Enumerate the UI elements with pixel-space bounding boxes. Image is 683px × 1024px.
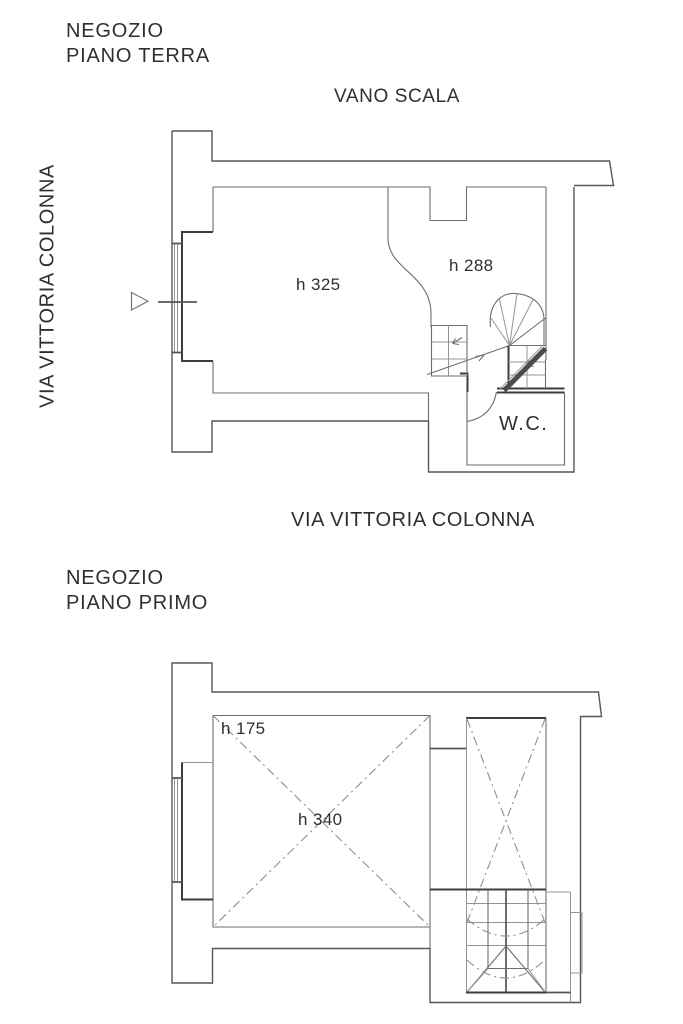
street-name-left: VIA VITTORIA COLONNA: [37, 164, 60, 408]
room-height-main-gf: h 325: [296, 275, 341, 295]
ff-bay-window-lines: [175, 779, 178, 883]
gf-stair-treads-left: [432, 326, 468, 377]
gf-stair-break-band-edge: [500, 347, 542, 390]
gf-stair-arrow-left: [453, 338, 463, 345]
gf-inner-wall-top: [213, 187, 546, 221]
ff-outer-walls: [172, 663, 602, 1003]
gf-winder-arc: [490, 293, 544, 345]
street-name-bottom: VIA VITTORIA COLONNA: [291, 509, 535, 532]
first-floor-title-line2: PIANO PRIMO: [66, 591, 208, 616]
entrance-direction-marker: [132, 293, 149, 311]
ground-floor-title-line1: NEGOZIO: [66, 19, 210, 44]
ff-right-inner-line: [546, 892, 571, 1002]
wc-label: W.C.: [499, 413, 548, 436]
first-floor-title: NEGOZIO PIANO PRIMO: [66, 566, 208, 616]
gf-outer-wall-top: [172, 131, 614, 186]
gf-inner-wall-left-lower-bottom: [213, 361, 429, 421]
gf-stair-walk-arrowhead: [476, 355, 485, 361]
ff-bay-wall: [182, 763, 213, 900]
gf-stair-treads-left-lines: [432, 326, 468, 377]
first-floor-title-line1: NEGOZIO: [66, 566, 208, 591]
gf-stair-break-band: [504, 349, 546, 391]
room-height-low-ff: h 175: [221, 719, 266, 739]
stairwell-label: VANO SCALA: [334, 86, 460, 108]
ground-floor-title: NEGOZIO PIANO TERRA: [66, 19, 210, 69]
gf-curved-partition: [388, 187, 431, 327]
room-height-back-gf: h 288: [449, 256, 494, 276]
floor-plan-page: NEGOZIO PIANO TERRA VANO SCALA VIA VITTO…: [0, 0, 683, 1024]
first-floor-plan-drawing: [172, 663, 602, 1003]
gf-entrance-window-lines: [175, 244, 178, 352]
gf-entrance-bay-wall: [182, 232, 213, 361]
ground-floor-title-line2: PIANO TERRA: [66, 44, 210, 69]
room-height-main-ff: h 340: [298, 810, 343, 830]
ff-stair-well-hole: [488, 890, 528, 969]
wc-door-swing: [467, 392, 497, 422]
